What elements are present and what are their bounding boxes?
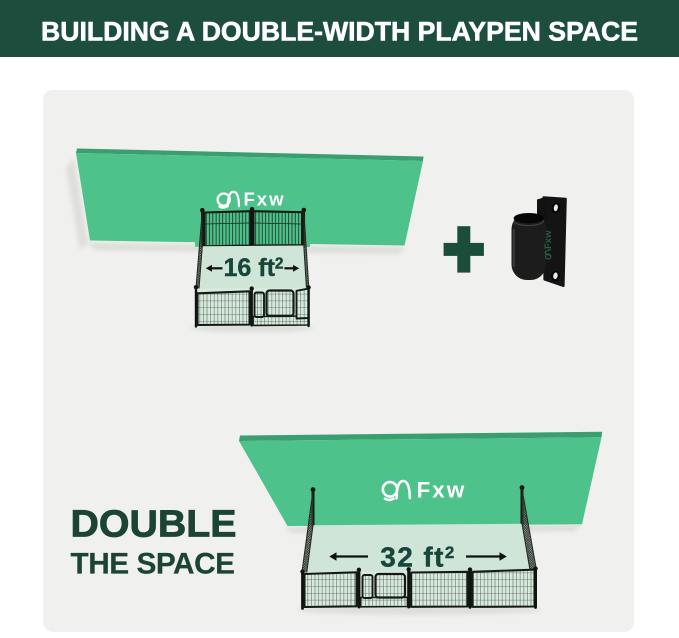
svg-text:Fxw: Fxw	[244, 189, 286, 210]
svg-text:Fxw: Fxw	[417, 478, 467, 503]
svg-text:DOUBLE: DOUBLE	[71, 504, 237, 546]
svg-text:THE SPACE: THE SPACE	[71, 548, 235, 581]
svg-text:Fxw: Fxw	[543, 230, 554, 249]
svg-text:16 ft2: 16 ft2	[223, 254, 283, 282]
svg-text:32 ft2: 32 ft2	[380, 542, 455, 573]
svg-text:BUILDING A DOUBLE-WIDTH PLAYPE: BUILDING A DOUBLE-WIDTH PLAYPEN SPACE	[41, 17, 638, 47]
